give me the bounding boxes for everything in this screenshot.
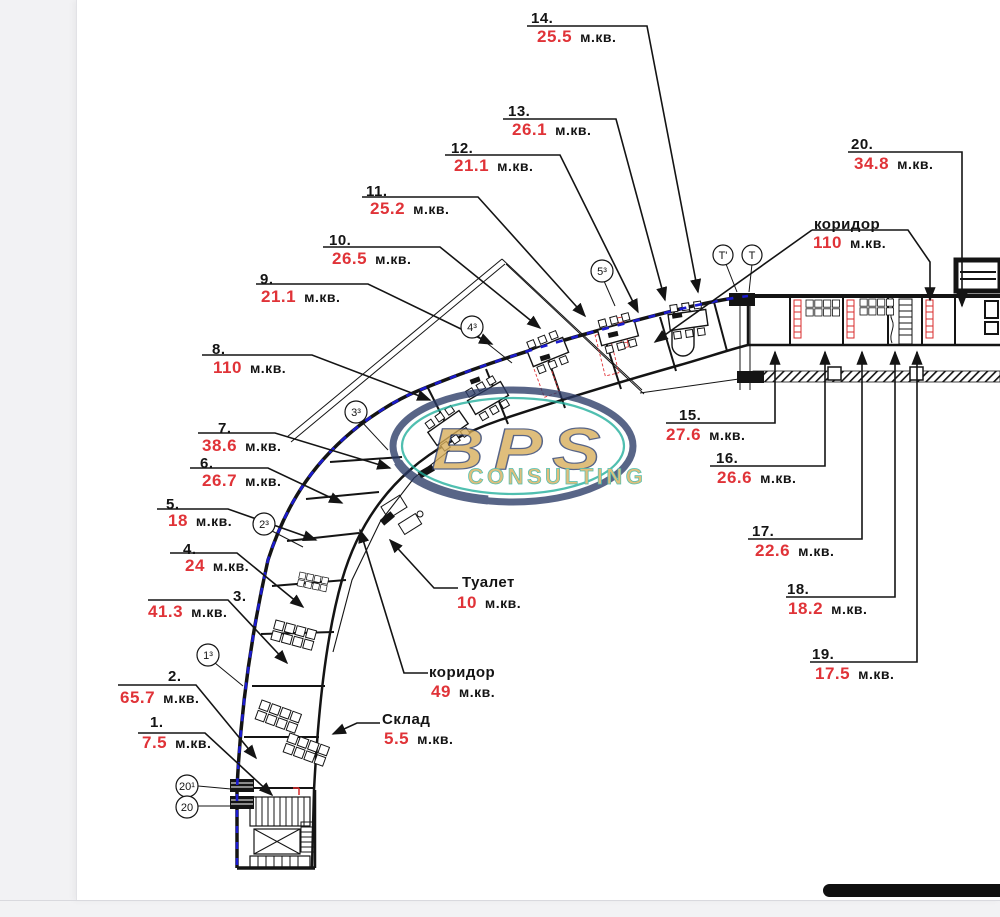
room-13-number: 13. [508,103,530,120]
labels-layer: 1. 7.5м.кв. 2. 65.7м.кв. 3. 41.3м.кв. 4.… [0,0,1000,917]
toilet-name: Туалет [462,574,515,591]
room-17-number: 17. [752,523,774,540]
room-12-number: 12. [451,140,473,157]
room-18-area: 18.2м.кв. [788,599,867,619]
room-6-number: 6. [200,455,214,472]
room-20-area: 34.8м.кв. [854,154,933,174]
room-2-area: 65.7м.кв. [120,688,199,708]
room-10-number: 10. [329,232,351,249]
room-13-area: 26.1м.кв. [512,120,591,140]
room-9-number: 9. [260,271,274,288]
room-15-number: 15. [679,407,701,424]
room-9-area: 21.1м.кв. [261,287,340,307]
room-19-number: 19. [812,646,834,663]
storage-area: 5.5м.кв. [384,729,453,749]
room-14-number: 14. [531,10,553,27]
room-5-area: 18м.кв. [168,511,232,531]
room-17-area: 22.6м.кв. [755,541,834,561]
room-14-area: 25.5м.кв. [537,27,616,47]
room-12-area: 21.1м.кв. [454,156,533,176]
room-16-number: 16. [716,450,738,467]
toilet-area: 10м.кв. [457,593,521,613]
room-11-number: 11. [366,183,388,200]
room-8-number: 8. [212,341,226,358]
room-10-area: 26.5м.кв. [332,249,411,269]
room-8-area: 110м.кв. [213,358,286,378]
room-15-area: 27.6м.кв. [666,425,745,445]
room-19-area: 17.5м.кв. [815,664,894,684]
room-1-area: 7.5м.кв. [142,733,211,753]
room-1-number: 1. [150,714,164,731]
storage-name: Склад [382,711,430,728]
room-3-area: 41.3м.кв. [148,602,227,622]
corridor-right-area: 110м.кв. [813,233,886,253]
room-7-area: 38.6м.кв. [202,436,281,456]
horizontal-scrollbar-thumb[interactable] [823,884,1000,897]
corridor-right-name: коридор [814,216,880,233]
viewer-background: 5³ 4³ 3³ 2³ 1³ 20¹ 20 Т' Т BPS CONSULTIN… [0,0,1000,917]
room-6-area: 26.7м.кв. [202,471,281,491]
room-18-number: 18. [787,581,809,598]
room-11-area: 25.2м.кв. [370,199,449,219]
room-16-area: 26.6м.кв. [717,468,796,488]
page-bottom-edge [0,900,1000,901]
room-7-number: 7. [218,420,232,437]
room-3-number: 3. [233,588,247,605]
corridor-center-name: коридор [429,664,495,681]
room-20-number: 20. [851,136,873,153]
corridor-center-area: 49м.кв. [431,682,495,702]
room-2-number: 2. [168,668,182,685]
room-4-area: 24м.кв. [185,556,249,576]
